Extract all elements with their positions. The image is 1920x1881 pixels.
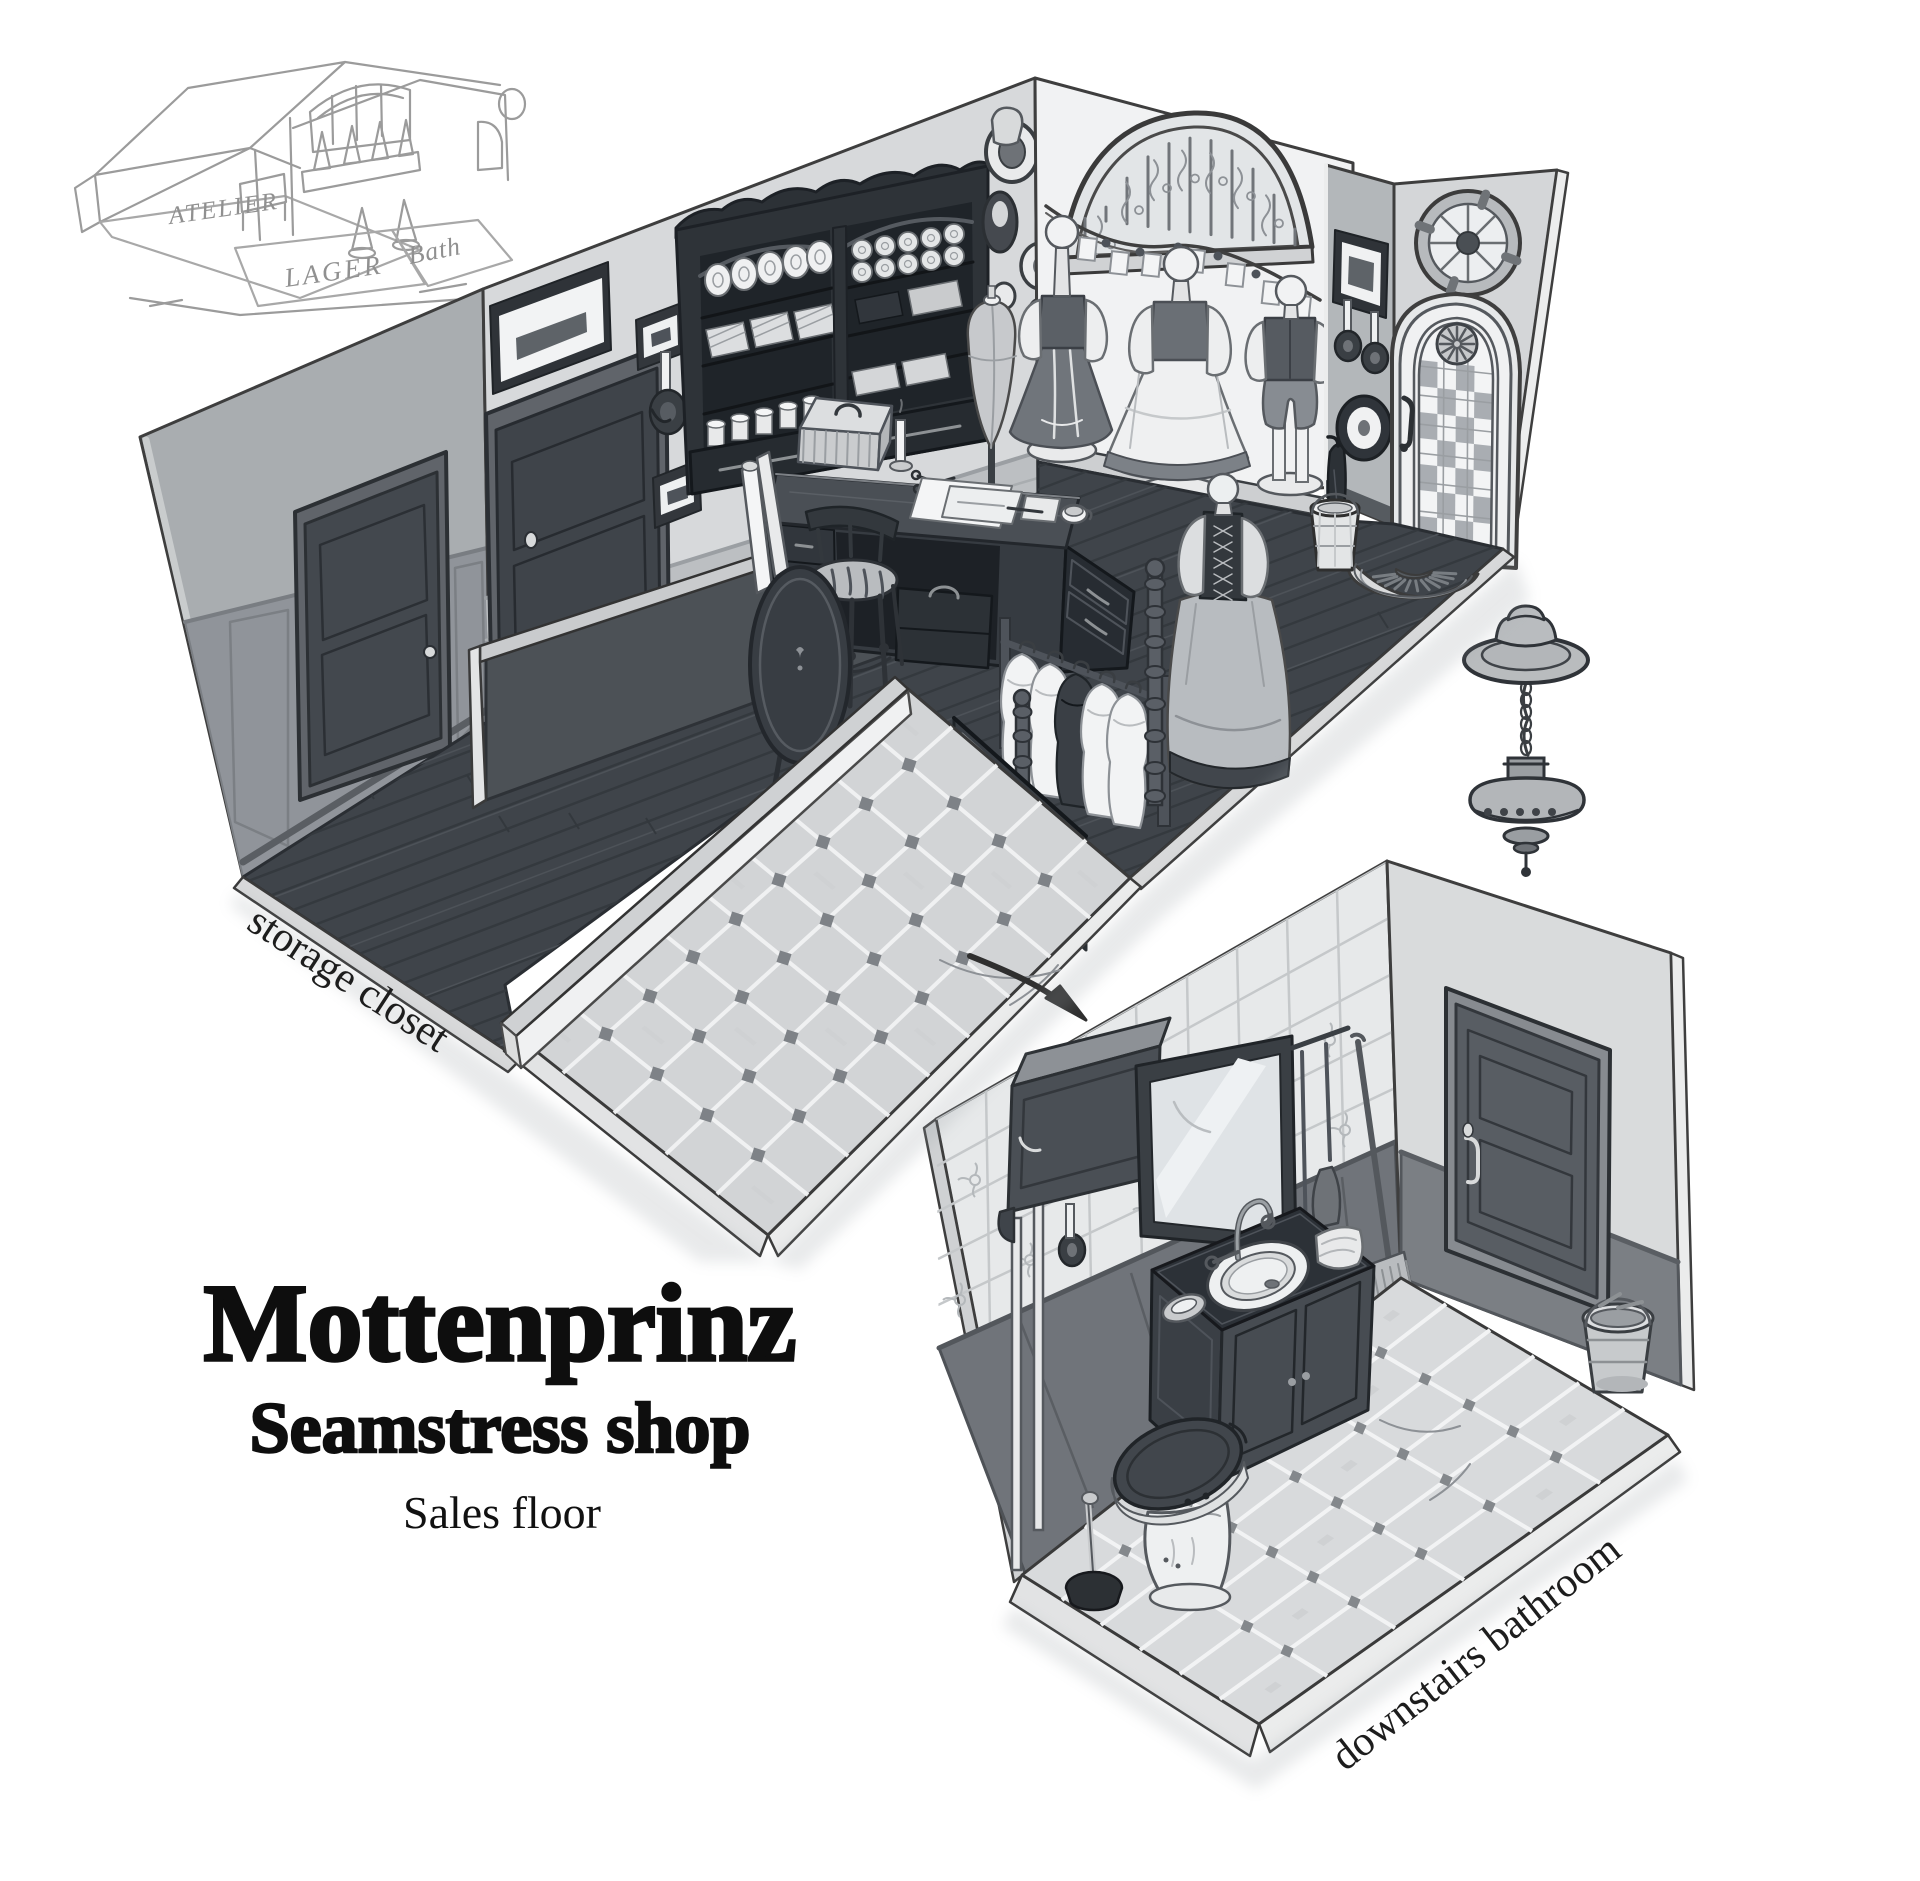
svg-text:Mottenprinz: Mottenprinz xyxy=(204,1262,797,1384)
svg-text:Sales floor: Sales floor xyxy=(403,1487,601,1538)
svg-text:Seamstress shop: Seamstress shop xyxy=(250,1388,751,1468)
